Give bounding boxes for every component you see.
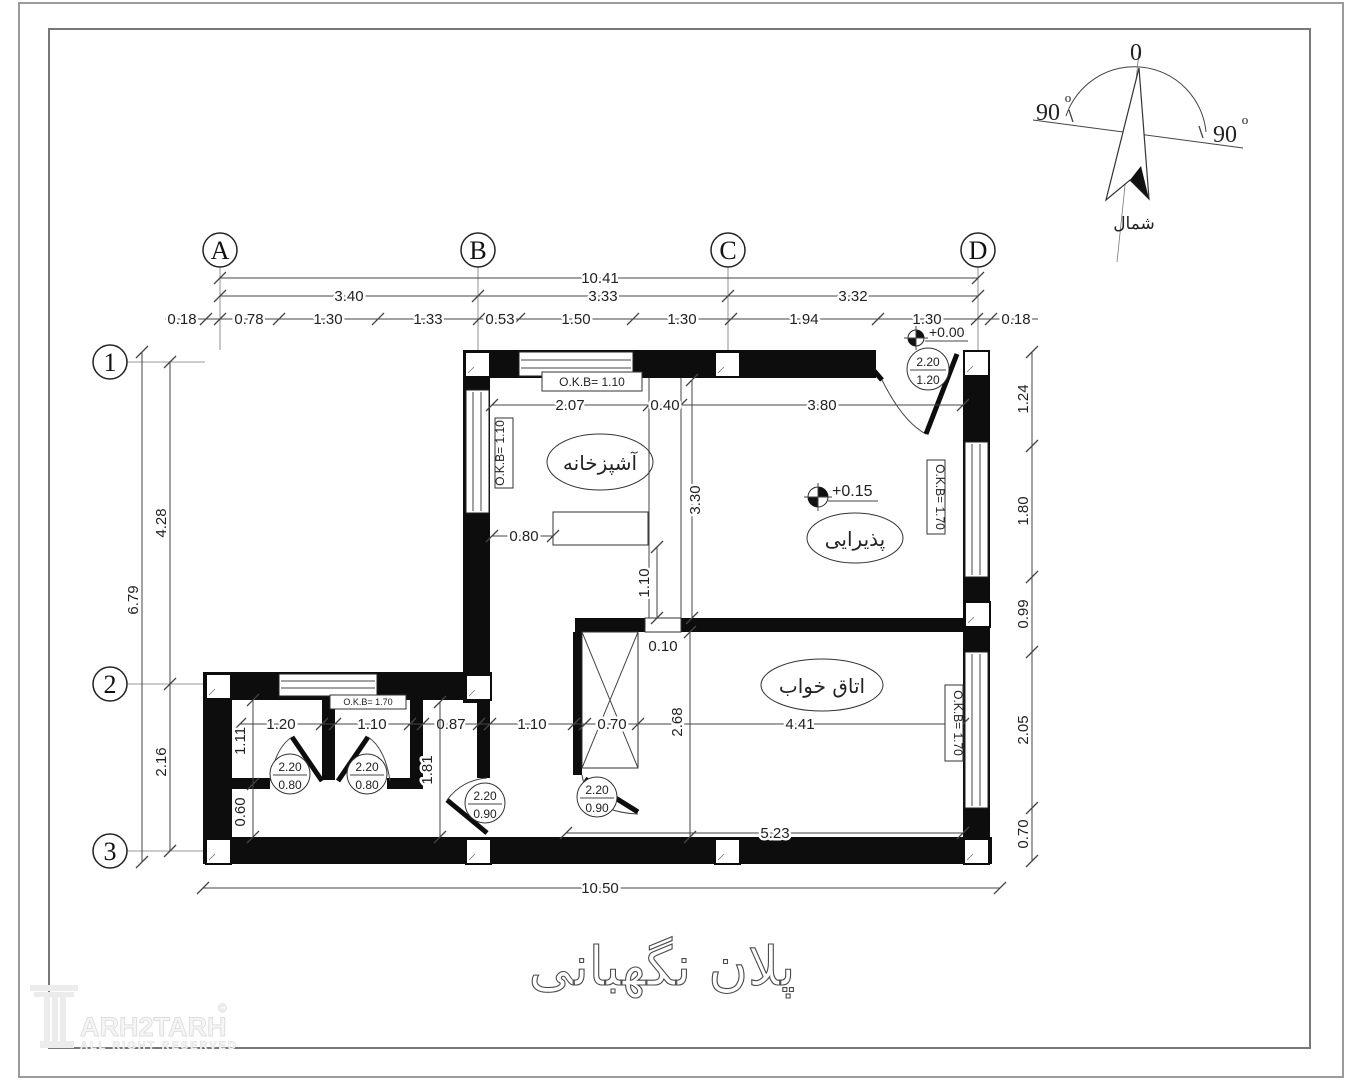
- door-tag-wc1: 2.20 0.80: [270, 754, 310, 794]
- wall-wc-front-1: [232, 778, 270, 789]
- dim-wall-niche: 0.10: [648, 638, 677, 655]
- dimensions-bottom: 10.50: [197, 880, 1006, 897]
- wall-south: [203, 837, 992, 864]
- drawing-sheet: 0 90 o 90 o شمال A B C D 1 2 3 10.41: [0, 0, 1350, 1080]
- kitchen-counter: [553, 512, 648, 545]
- svg-text:0.80: 0.80: [355, 778, 379, 792]
- svg-text:2.20: 2.20: [473, 789, 497, 803]
- dim-right-3: 2.05: [1015, 715, 1032, 744]
- svg-text:2.20: 2.20: [355, 760, 379, 774]
- column-C1: [715, 352, 740, 377]
- grid-label-2: 2: [104, 670, 117, 699]
- grid-label-3: 3: [104, 837, 117, 866]
- dimensions-top: 10.41 3.40 3.33 3.32 0.18 0.78 1.30 1.33…: [165, 270, 1038, 328]
- dim-detail-6: 1.30: [667, 311, 696, 328]
- column-D1: [964, 351, 989, 376]
- dim-wc1-width: 1.20: [266, 716, 295, 733]
- dim-bay-ab: 3.40: [334, 288, 363, 305]
- dim-bedroom-width: 4.41: [785, 716, 814, 733]
- north-compass: 0 90 o 90 o شمال: [1033, 40, 1248, 262]
- compass-right-angle: 90: [1213, 122, 1237, 148]
- column-D-mid: [965, 602, 990, 627]
- dim-right-2: 0.99: [1015, 599, 1032, 628]
- grid-label-B: B: [469, 236, 486, 265]
- wall-bedroom-north: [575, 618, 963, 632]
- wall-west-lower: [203, 672, 232, 864]
- dim-bay-cd: 3.32: [838, 288, 867, 305]
- window-wc: [279, 674, 377, 696]
- dim-right-4: 0.70: [1015, 819, 1032, 848]
- okb-wc-window: O.K.B= 1.70: [343, 697, 392, 707]
- dim-detail-9: 0.18: [1001, 311, 1030, 328]
- grid-label-C: C: [719, 236, 736, 265]
- column-B1: [465, 352, 490, 377]
- dim-detail-5: 1.50: [561, 311, 590, 328]
- svg-text:2.20: 2.20: [585, 783, 609, 797]
- okb-right-upper-window: O.K.B= 1.70: [933, 464, 947, 530]
- dim-hall-width: 0.87: [436, 716, 465, 733]
- dimensions-left: 6.79 4.28 2.16: [125, 346, 176, 868]
- window-east-lower: [965, 652, 988, 808]
- level-entrance: +0.00: [929, 324, 965, 340]
- dim-bedroom-depth: 2.68: [669, 707, 686, 736]
- dim-wc2-width: 1.10: [357, 716, 386, 733]
- watermark-copyright: ©: [218, 1001, 229, 1015]
- compass-left-degree: o: [1065, 90, 1072, 105]
- living-label: پذیرایی: [825, 527, 885, 552]
- window-east-upper: [965, 442, 988, 577]
- dim-detail-2: 1.30: [313, 311, 342, 328]
- dim-kitchen-width: 2.07: [555, 397, 584, 414]
- wall-hall: [477, 700, 490, 778]
- okb-right-lower-window: O.K.B= 1.70: [951, 690, 965, 756]
- dim-detail-4: 0.53: [485, 311, 514, 328]
- compass-right-degree: o: [1242, 112, 1249, 127]
- wall-wc-front-2: [387, 778, 423, 789]
- kitchen-label: آشپزخانه: [563, 450, 639, 476]
- dim-hall-depth: 1.81: [419, 755, 436, 784]
- column-C3: [715, 839, 740, 864]
- okb-top-window: O.K.B= 1.10: [559, 375, 625, 389]
- dim-left-23: 2.16: [153, 747, 170, 776]
- level-marker-living: +0.15: [804, 483, 878, 511]
- watermark-brand: ARH2TARH: [80, 1012, 227, 1042]
- dim-kitchen-depth: 3.30: [687, 485, 704, 514]
- column-A2: [206, 674, 231, 699]
- wall-shaft-west: [573, 632, 582, 775]
- svg-text:0.80: 0.80: [278, 778, 302, 792]
- door-tag-bedroom: 2.20 0.90: [577, 777, 617, 817]
- column-B2: [466, 675, 491, 700]
- svg-text:1.20: 1.20: [916, 373, 940, 387]
- floor-plan-drawing: 0 90 o 90 o شمال A B C D 1 2 3 10.41: [0, 0, 1350, 1080]
- grid-label-A: A: [211, 236, 230, 265]
- dim-left-overall: 6.79: [125, 585, 142, 614]
- dim-shaft-width: 0.70: [597, 716, 626, 733]
- svg-text:0.90: 0.90: [473, 807, 497, 821]
- svg-text:0.90: 0.90: [585, 801, 609, 815]
- dim-right-0: 1.24: [1015, 384, 1032, 413]
- duct-shaft: [582, 632, 638, 768]
- column-B3: [466, 839, 491, 864]
- level-living: +0.15: [832, 483, 873, 500]
- dim-overall-bottom: 10.50: [581, 880, 619, 897]
- dim-left-12: 4.28: [153, 508, 170, 537]
- grid-label-D: D: [969, 236, 988, 265]
- watermark-pillar-icon: [30, 985, 78, 1048]
- dim-detail-3: 1.33: [413, 311, 442, 328]
- column-D3: [964, 839, 989, 864]
- dim-hall-to-shaft: 1.10: [517, 716, 546, 733]
- okb-labels: O.K.B= 1.10 O.K.B= 1.10 O.K.B= 1.70 O.K.…: [330, 372, 965, 761]
- watermark-tagline: ALL RIGHT RESERVED: [80, 1040, 238, 1052]
- dim-right-1: 1.80: [1015, 496, 1032, 525]
- grid-label-1: 1: [104, 348, 117, 377]
- svg-text:2.20: 2.20: [278, 760, 302, 774]
- okb-left-window: O.K.B= 1.10: [493, 420, 507, 486]
- window-west: [466, 390, 489, 513]
- compass-zero-label: 0: [1130, 40, 1142, 66]
- dimensions-right: 1.24 1.80 0.99 2.05 0.70: [1015, 346, 1038, 867]
- dim-overall-top: 10.41: [581, 270, 619, 287]
- compass-left-angle: 90: [1036, 100, 1060, 126]
- door-tag-entrance: 2.20 1.20: [907, 348, 949, 390]
- dim-counter-offset: 0.80: [509, 528, 538, 545]
- watermark: ARH2TARH © ALL RIGHT RESERVED: [30, 985, 238, 1052]
- north-label: شمال: [1113, 214, 1155, 234]
- dim-counter-to-wall: 1.10: [636, 568, 653, 597]
- dim-bedroom-south: 5.23: [760, 825, 789, 842]
- dim-living-width: 3.80: [807, 397, 836, 414]
- dim-wc-depth: 1.11: [232, 727, 249, 755]
- drawing-title: پلان نگهبانی: [529, 935, 796, 998]
- dim-detail-7: 1.94: [789, 311, 818, 328]
- dim-partition-width: 0.40: [650, 397, 679, 414]
- wall-niche: [645, 618, 681, 632]
- dim-detail-0: 0.18: [167, 311, 196, 328]
- svg-text:2.20: 2.20: [916, 355, 940, 369]
- door-tag-hall: 2.20 0.90: [465, 783, 505, 823]
- dim-bay-bc: 3.33: [588, 288, 617, 305]
- column-A3: [206, 839, 231, 864]
- fixtures: [553, 378, 681, 768]
- door-tag-wc2: 2.20 0.80: [347, 754, 387, 794]
- dim-detail-1: 0.78: [234, 311, 263, 328]
- bedroom-label: اتاق خواب: [779, 674, 865, 698]
- dim-wc-lower: 0.60: [232, 797, 249, 826]
